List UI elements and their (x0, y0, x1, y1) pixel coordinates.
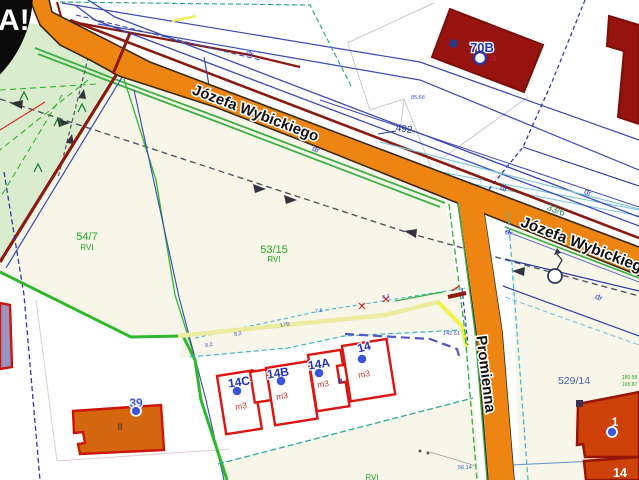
svg-text:1B: 1B (489, 57, 496, 63)
svg-text:8.2: 8.2 (234, 331, 243, 338)
svg-text:142.61: 142.61 (443, 331, 460, 337)
svg-text:A!: A! (0, 4, 30, 37)
svg-text:RVI: RVI (80, 243, 93, 252)
svg-text:8: 8 (117, 422, 122, 432)
svg-text:7.8: 7.8 (315, 308, 324, 315)
svg-text:RVI: RVI (267, 255, 280, 264)
svg-text:529/14: 529/14 (558, 375, 590, 387)
svg-text:85.58: 85.58 (411, 95, 425, 101)
svg-text:54/7: 54/7 (76, 231, 97, 243)
svg-text:56.14: 56.14 (458, 465, 472, 471)
svg-text:B: B (338, 378, 343, 385)
svg-text:m3: m3 (357, 368, 370, 380)
svg-text:III: III (601, 429, 605, 435)
svg-text:m3: m3 (234, 400, 247, 412)
svg-text:8.2: 8.2 (205, 342, 214, 349)
svg-text:165.87: 165.87 (622, 382, 638, 388)
svg-text:m3: m3 (275, 390, 288, 402)
svg-text:8.2: 8.2 (382, 294, 391, 301)
svg-text:180.58: 180.58 (622, 375, 638, 381)
svg-text:14: 14 (613, 466, 627, 480)
svg-text:RVI: RVI (365, 473, 378, 480)
svg-text:m3: m3 (316, 378, 329, 390)
